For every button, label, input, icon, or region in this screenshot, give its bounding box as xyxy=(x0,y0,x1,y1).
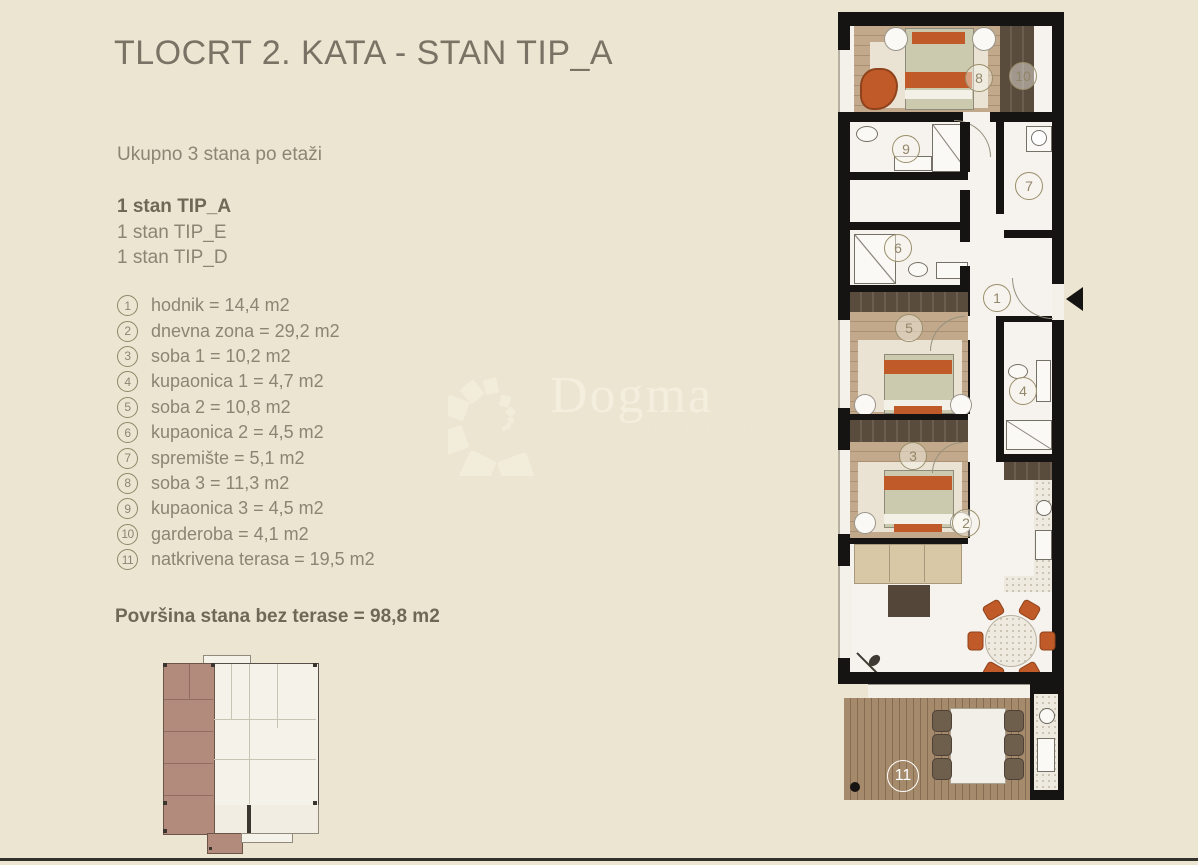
room-number-badge: 3 xyxy=(117,346,138,367)
coffee-table-icon xyxy=(888,585,930,617)
wall xyxy=(996,122,1004,214)
mini-wall-speck xyxy=(313,801,317,805)
wall xyxy=(996,454,1052,462)
wardrobe-band xyxy=(850,420,968,442)
outdoor-chair-icon xyxy=(1004,734,1024,756)
mini-wall-speck xyxy=(211,663,215,667)
wall xyxy=(996,316,1004,462)
bed-runner xyxy=(884,476,952,490)
watermark-subtitle: nekretnine xyxy=(645,414,761,442)
plan-badge-6: 6 xyxy=(884,234,912,262)
mini-wall-speck xyxy=(163,829,167,833)
bed-foot xyxy=(905,90,972,99)
washing-machine-drum xyxy=(1031,130,1047,146)
floor-overview-miniplan xyxy=(157,655,323,853)
bed-runner xyxy=(905,72,972,88)
side-table xyxy=(854,512,876,534)
room-number-badge: 5 xyxy=(117,397,138,418)
bed-runner xyxy=(884,360,952,374)
plan-badge-1: 1 xyxy=(983,284,1011,312)
room-label: kupaonica 2 = 4,5 m2 xyxy=(151,422,324,443)
page-bottom-rule xyxy=(0,858,1198,861)
dogma-logo-flower-icon xyxy=(448,368,550,476)
side-table xyxy=(950,394,972,416)
list-item: 10garderoba = 4,1 m2 xyxy=(117,522,375,547)
room-number-badge: 6 xyxy=(117,422,138,443)
outdoor-table-icon xyxy=(950,708,1006,784)
kitchen-sink-icon xyxy=(1036,500,1052,516)
cooktop-icon xyxy=(1035,530,1052,560)
sofa-seam xyxy=(889,544,890,582)
sofa-seam xyxy=(924,544,925,582)
window xyxy=(838,50,852,112)
side-table xyxy=(972,27,996,51)
plan-badge-10: 10 xyxy=(1009,62,1037,90)
mini-line xyxy=(214,719,316,720)
dining-chair-icon xyxy=(968,632,984,651)
mini-line xyxy=(164,795,213,796)
mini-line xyxy=(164,699,213,700)
mini-balcony-tab xyxy=(241,833,293,843)
list-item: 2dnevna zona = 29,2 m2 xyxy=(117,318,375,343)
side-table xyxy=(854,394,876,416)
unit-item-tip-e: 1 stan TIP_E xyxy=(117,220,231,246)
list-item: 6kupaonica 2 = 4,5 m2 xyxy=(117,420,375,445)
plan-badge-2: 2 xyxy=(952,509,980,537)
list-item: 4kupaonica 1 = 4,7 m2 xyxy=(117,369,375,394)
wardrobe-band xyxy=(850,292,968,312)
outdoor-sink-icon xyxy=(1039,708,1055,724)
plan-badge-5: 5 xyxy=(895,314,923,342)
bathtub-icon xyxy=(1006,420,1052,450)
room-number-badge: 11 xyxy=(117,549,138,570)
wall xyxy=(960,190,970,242)
kitchen-cabinets xyxy=(1004,462,1052,480)
mini-wall-speck xyxy=(163,801,167,805)
entrance-arrow-icon xyxy=(1066,287,1083,311)
unit-item-tip-d: 1 stan TIP_D xyxy=(117,245,231,271)
summary-line: Ukupno 3 stana po etaži xyxy=(117,144,322,166)
room-number-badge: 8 xyxy=(117,473,138,494)
wall xyxy=(850,222,968,230)
mini-line xyxy=(214,759,316,760)
plan-badge-7: 7 xyxy=(1015,172,1043,200)
room-number-badge: 9 xyxy=(117,498,138,519)
room-label: garderoba = 4,1 m2 xyxy=(151,524,309,545)
room-label: soba 1 = 10,2 m2 xyxy=(151,346,291,367)
floorplan-page: TLOCRT 2. KATA - STAN TIP_A Ukupno 3 sta… xyxy=(0,0,1198,865)
room-label: soba 2 = 10,8 m2 xyxy=(151,397,291,418)
mini-line xyxy=(231,664,232,719)
room-label: spremište = 5,1 m2 xyxy=(151,448,305,469)
list-item: 7spremište = 5,1 m2 xyxy=(117,445,375,470)
wall xyxy=(990,112,1052,122)
bed-headboard xyxy=(912,32,965,44)
mini-highlight-terrace xyxy=(207,833,243,854)
unit-item-tip-a: 1 stan TIP_A xyxy=(117,194,231,220)
mini-wall-speck xyxy=(163,663,167,667)
room-number-badge: 1 xyxy=(117,295,138,316)
plan-badge-3: 3 xyxy=(899,442,927,470)
main-floorplan: 1 2 3 4 5 6 7 8 9 10 11 xyxy=(838,10,1088,810)
dining-chair-icon xyxy=(1040,632,1056,651)
list-item: 8soba 3 = 11,3 m2 xyxy=(117,471,375,496)
total-area-label: Površina stana bez terase = 98,8 m2 xyxy=(115,606,440,628)
outdoor-cooktop-icon xyxy=(1037,738,1055,772)
room-label: dnevna zona = 29,2 m2 xyxy=(151,321,340,342)
plan-badge-4: 4 xyxy=(1009,377,1037,405)
list-item: 9kupaonica 3 = 4,5 m2 xyxy=(117,496,375,521)
outdoor-chair-icon xyxy=(1004,710,1024,732)
wall xyxy=(850,112,963,122)
mini-line xyxy=(164,763,213,764)
wall xyxy=(850,285,968,292)
mini-line xyxy=(189,664,190,699)
sofa-icon xyxy=(854,544,962,584)
bed-bench xyxy=(894,524,942,532)
room-number-badge: 4 xyxy=(117,371,138,392)
wall xyxy=(838,672,1064,684)
room-number-badge: 7 xyxy=(117,448,138,469)
room-label: kupaonica 1 = 4,7 m2 xyxy=(151,371,324,392)
wall xyxy=(1004,230,1052,238)
bed-foot xyxy=(884,514,952,524)
outdoor-chair-icon xyxy=(1004,758,1024,780)
room-number-badge: 10 xyxy=(117,524,138,545)
room-label: soba 3 = 11,3 m2 xyxy=(151,473,289,494)
page-title: TLOCRT 2. KATA - STAN TIP_A xyxy=(114,34,613,73)
window xyxy=(838,566,852,658)
toilet-icon xyxy=(856,126,878,142)
plan-badge-9: 9 xyxy=(892,135,920,163)
plan-badge-8: 8 xyxy=(965,64,993,92)
dining-table-icon xyxy=(985,615,1037,667)
vanity-icon xyxy=(1036,360,1051,402)
unit-list: 1 stan TIP_A 1 stan TIP_E 1 stan TIP_D xyxy=(117,194,231,271)
toilet-icon xyxy=(908,262,928,277)
room-label: hodnik = 14,4 m2 xyxy=(151,295,290,316)
list-item: 5soba 2 = 10,8 m2 xyxy=(117,395,375,420)
list-item: 11natkrivena terasa = 19,5 m2 xyxy=(117,547,375,572)
outdoor-chair-icon xyxy=(932,710,952,732)
side-table xyxy=(884,27,908,51)
room-label: natkrivena terasa = 19,5 m2 xyxy=(151,549,375,570)
terrace-drain-dot xyxy=(850,782,860,792)
kitchen-counter xyxy=(1034,480,1052,576)
wall xyxy=(960,122,970,172)
plan-badge-11: 11 xyxy=(887,760,919,792)
list-item: 3soba 1 = 10,2 m2 xyxy=(117,344,375,369)
mini-wall-speck xyxy=(247,805,251,833)
outdoor-chair-icon xyxy=(932,758,952,780)
outdoor-chair-icon xyxy=(932,734,952,756)
mini-wall-speck xyxy=(209,847,212,850)
mini-wall-speck xyxy=(313,663,317,667)
kitchen-lower-counter xyxy=(1004,576,1052,592)
mini-line xyxy=(249,664,250,804)
room-number-badge: 2 xyxy=(117,321,138,342)
entry-door-gap xyxy=(1052,284,1064,320)
room-area-list: 1hodnik = 14,4 m2 2dnevna zona = 29,2 m2… xyxy=(117,293,375,572)
mini-line xyxy=(164,731,213,732)
room-label: kupaonica 3 = 4,5 m2 xyxy=(151,498,324,519)
wall xyxy=(850,172,968,180)
list-item: 1hodnik = 14,4 m2 xyxy=(117,293,375,318)
